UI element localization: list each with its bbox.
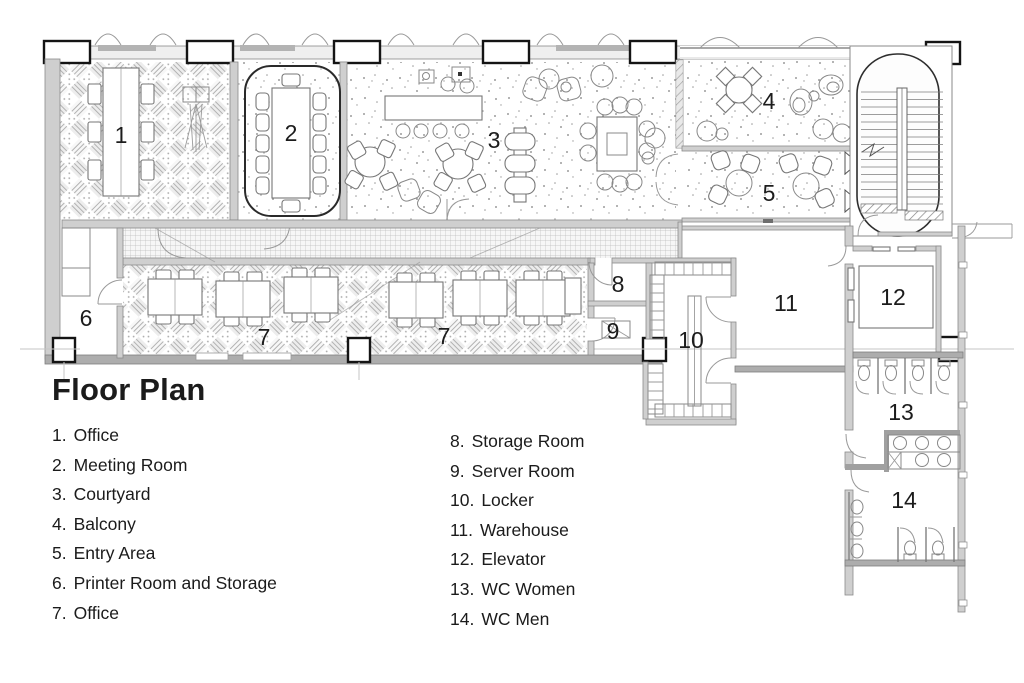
legend-item-9: 9.Server Room: [450, 457, 584, 487]
legend-number: 1.: [52, 425, 67, 445]
legend-label: Locker: [481, 490, 534, 510]
legend-item-13: 13.WC Women: [450, 575, 584, 605]
room-label-10: 10: [678, 327, 704, 353]
room-label-7b: 7: [438, 323, 451, 349]
legend-number: 14.: [450, 609, 474, 629]
legend-label: Elevator: [481, 549, 545, 569]
room-label-7a: 7: [258, 324, 271, 350]
legend-number: 11.: [450, 520, 473, 540]
legend-label: Meeting Room: [74, 455, 188, 475]
legend-number: 13.: [450, 579, 474, 599]
room-label-9: 9: [607, 318, 620, 344]
legend: 1.Office 2.Meeting Room 3.Courtyard 4.Ba…: [52, 421, 952, 628]
room-label-12: 12: [880, 284, 906, 310]
legend-number: 12.: [450, 549, 474, 569]
legend-column-2: 8.Storage Room 9.Server Room 10.Locker 1…: [450, 427, 584, 634]
legend-label: WC Women: [481, 579, 575, 599]
legend-label: Office: [74, 603, 119, 623]
room-label-8: 8: [612, 271, 625, 297]
legend-item-14: 14.WC Men: [450, 605, 584, 635]
room-label-6: 6: [80, 305, 93, 331]
room-label-11: 11: [774, 290, 798, 316]
room-label-5: 5: [763, 180, 776, 206]
legend-label: WC Men: [481, 609, 549, 629]
legend-number: 10.: [450, 490, 474, 510]
room-label-4: 4: [763, 88, 776, 114]
legend-number: 7.: [52, 603, 67, 623]
legend-number: 5.: [52, 543, 67, 563]
legend-label: Office: [74, 425, 119, 445]
legend-item-11: 11.Warehouse: [450, 516, 584, 546]
legend-number: 4.: [52, 514, 67, 534]
bench-group: [505, 128, 535, 202]
floor-plan-page: 1 2 3 4 5 6 7 7 8 9 10 11 12 13 14 Floor…: [0, 0, 1024, 683]
room-label-1: 1: [115, 122, 128, 148]
legend-number: 2.: [52, 455, 67, 475]
legend-label: Balcony: [74, 514, 136, 534]
room-label-3: 3: [488, 127, 501, 153]
legend-number: 8.: [450, 431, 465, 451]
legend-item-10: 10.Locker: [450, 486, 584, 516]
staircase: [850, 46, 1012, 238]
legend-number: 3.: [52, 484, 67, 504]
caption-block: Floor Plan 1.Office 2.Meeting Room 3.Cou…: [52, 372, 952, 628]
legend-item-12: 12.Elevator: [450, 545, 584, 575]
legend-label: Entry Area: [74, 543, 156, 563]
legend-label: Printer Room and Storage: [74, 573, 277, 593]
legend-label: Storage Room: [472, 431, 585, 451]
legend-item-8: 8.Storage Room: [450, 427, 584, 457]
legend-label: Server Room: [472, 461, 575, 481]
legend-number: 9.: [450, 461, 465, 481]
legend-label: Warehouse: [480, 520, 569, 540]
legend-label: Courtyard: [74, 484, 151, 504]
room-label-2: 2: [285, 120, 298, 146]
page-title: Floor Plan: [52, 372, 952, 408]
legend-number: 6.: [52, 573, 67, 593]
